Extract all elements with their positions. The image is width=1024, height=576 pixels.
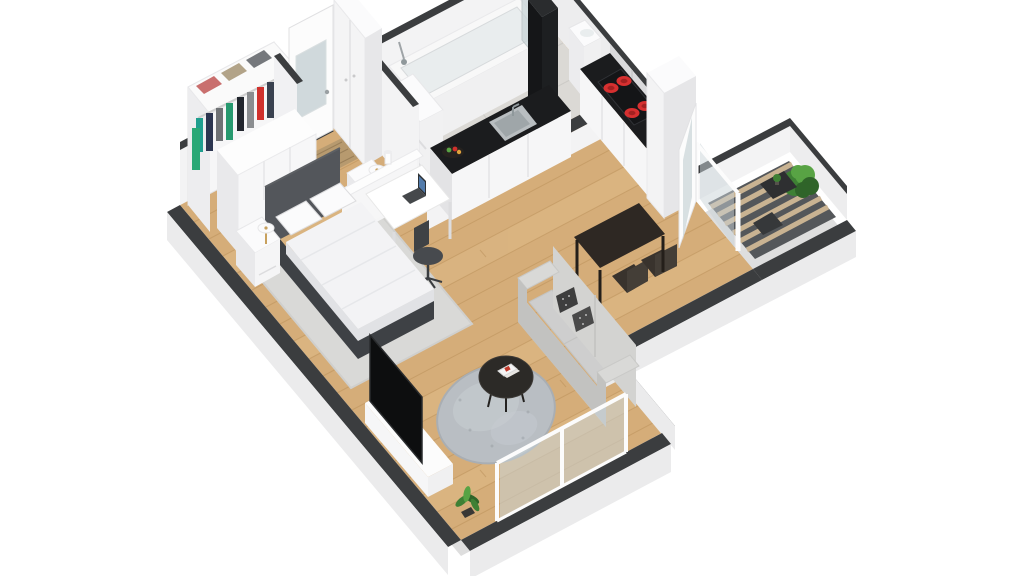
hanging-towel [192, 128, 200, 170]
floor-plan-3d-render: 3D isometric floor plan render of a one-… [0, 0, 1024, 576]
floor-plan-screenshot: 3D isometric floor plan render of a one-… [0, 0, 1024, 576]
fruit-bowl [442, 146, 464, 158]
balcony-table-plant [773, 174, 781, 182]
door-handle [325, 90, 329, 94]
shower-mixer [401, 59, 407, 65]
chair-seat [413, 247, 443, 265]
